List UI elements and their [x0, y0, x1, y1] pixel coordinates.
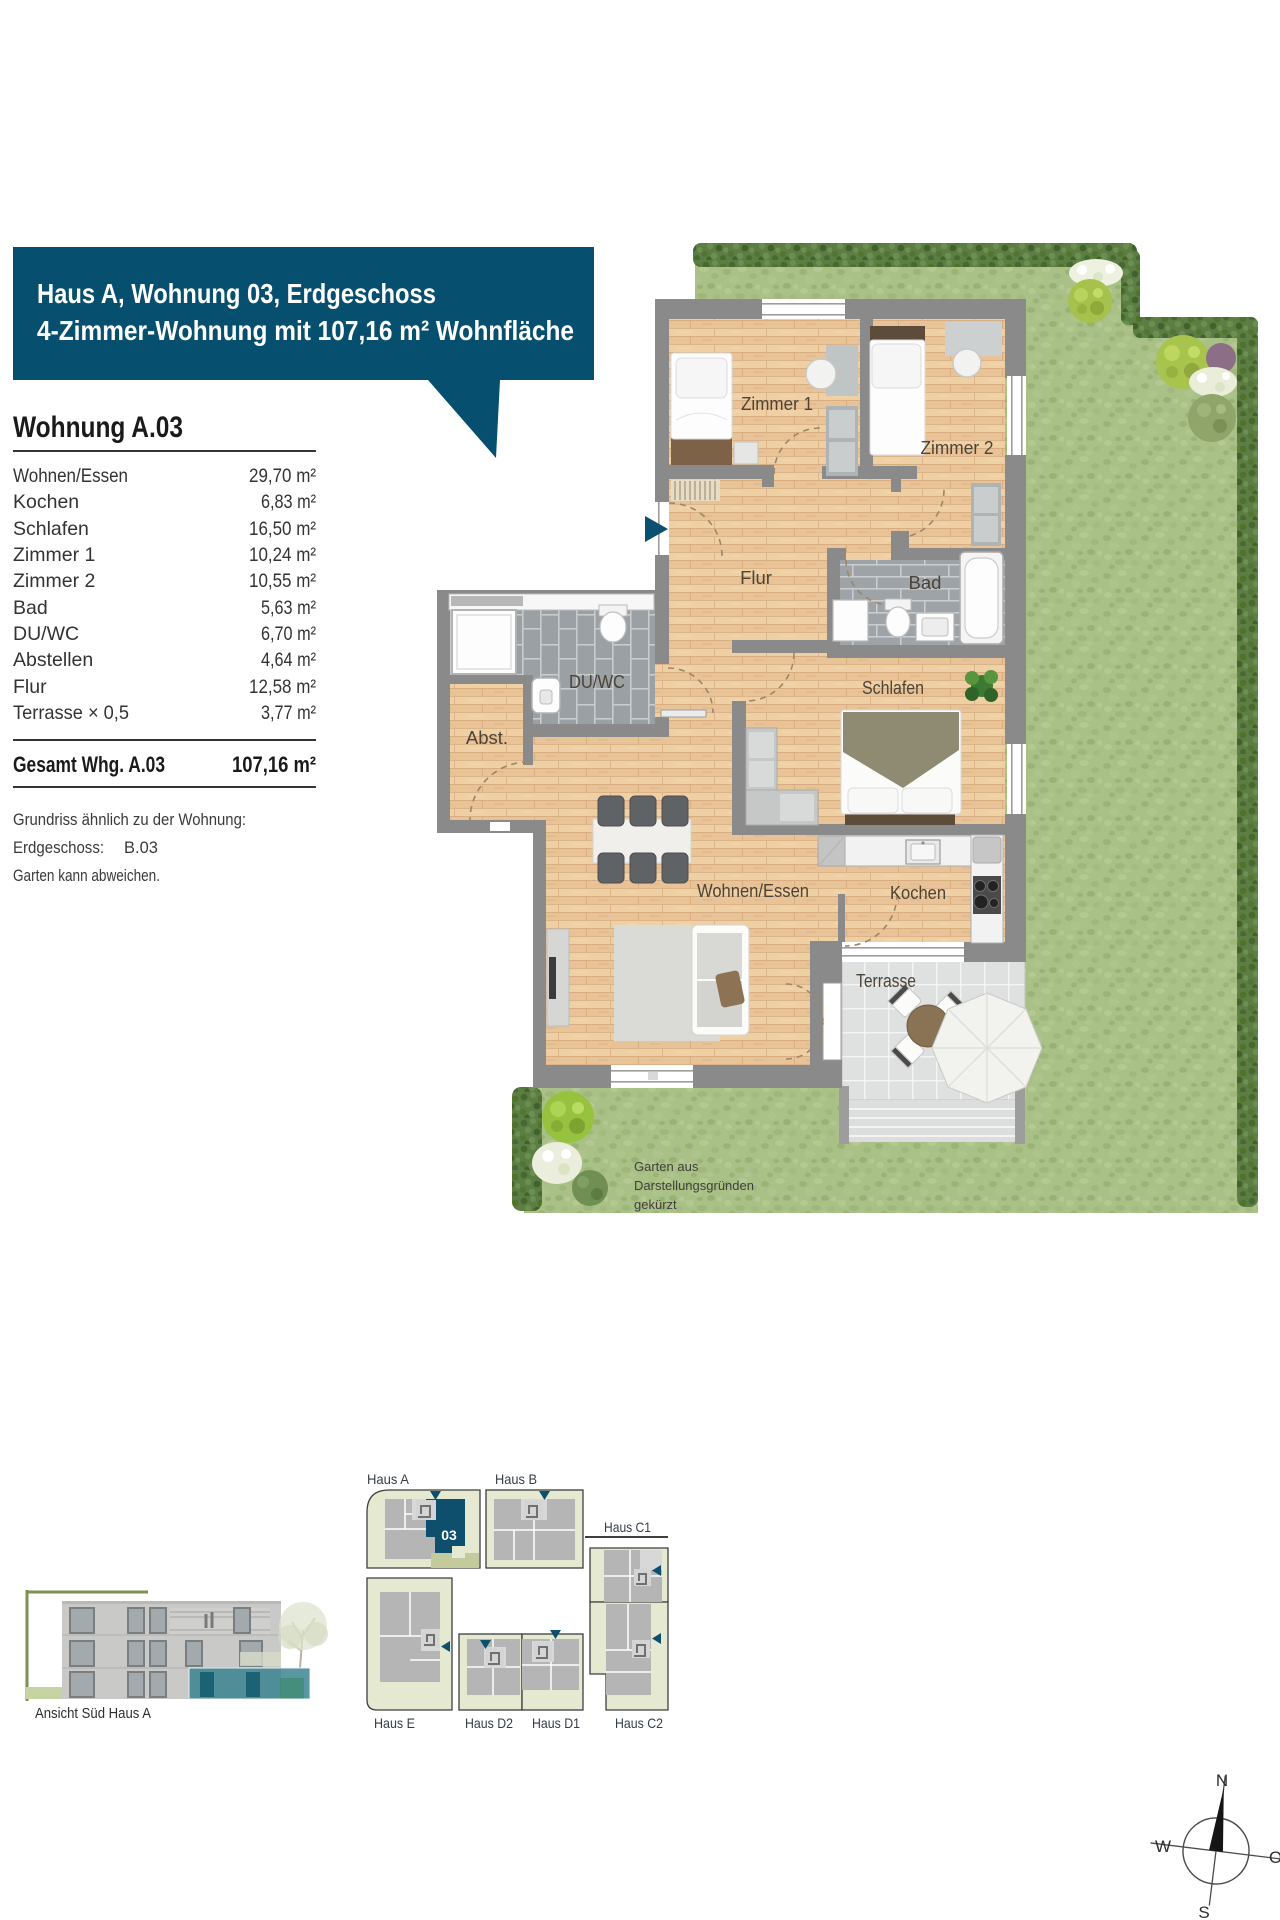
svg-text:Abstellen: Abstellen — [13, 649, 93, 671]
svg-text:Wohnen/Essen: Wohnen/Essen — [697, 880, 809, 901]
svg-text:DU/WC: DU/WC — [13, 623, 79, 645]
svg-text:Zimmer 2: Zimmer 2 — [921, 437, 994, 458]
svg-text:4,64 m²: 4,64 m² — [261, 649, 316, 671]
svg-text:Zimmer 1: Zimmer 1 — [13, 544, 95, 566]
svg-text:3,77 m²: 3,77 m² — [261, 702, 316, 724]
svg-text:5,63 m²: 5,63 m² — [261, 597, 316, 619]
svg-text:Abst.: Abst. — [466, 727, 508, 748]
svg-text:6,70 m²: 6,70 m² — [261, 623, 316, 645]
svg-text:4-Zimmer-Wohnung mit 107,16 m²: 4-Zimmer-Wohnung mit 107,16 m² Wohnfläch… — [37, 315, 574, 346]
svg-text:Haus B: Haus B — [495, 1471, 537, 1487]
svg-text:6,83 m²: 6,83 m² — [261, 491, 316, 513]
svg-text:Haus A, Wohnung 03, Erdgeschos: Haus A, Wohnung 03, Erdgeschoss — [37, 278, 436, 309]
svg-text:Ansicht Süd Haus A: Ansicht Süd Haus A — [35, 1706, 151, 1722]
svg-text:DU/WC: DU/WC — [569, 671, 625, 692]
svg-text:Kochen: Kochen — [890, 882, 946, 903]
svg-text:Bad: Bad — [13, 597, 48, 619]
svg-text:Grundriss ähnlich zu der Wohnu: Grundriss ähnlich zu der Wohnung: — [13, 811, 246, 829]
svg-text:Darstellungsgründen: Darstellungsgründen — [634, 1178, 754, 1193]
svg-text:107,16 m²: 107,16 m² — [232, 752, 316, 777]
svg-text:Erdgeschoss:: Erdgeschoss: — [13, 839, 104, 857]
svg-text:Haus C1: Haus C1 — [604, 1519, 651, 1535]
svg-text:N: N — [1216, 1771, 1228, 1790]
svg-text:gekürzt: gekürzt — [634, 1197, 677, 1212]
svg-text:Bad: Bad — [909, 572, 942, 593]
svg-text:Zimmer 1: Zimmer 1 — [741, 393, 813, 414]
svg-text:Garten aus: Garten aus — [634, 1159, 699, 1174]
svg-text:Haus A: Haus A — [367, 1471, 410, 1487]
svg-text:Kochen: Kochen — [13, 491, 79, 513]
svg-text:Wohnen/Essen: Wohnen/Essen — [13, 465, 128, 487]
svg-text:W: W — [1155, 1837, 1171, 1856]
svg-text:Wohnung A.03: Wohnung A.03 — [13, 411, 183, 444]
svg-text:Garten kann abweichen.: Garten kann abweichen. — [13, 867, 160, 885]
svg-text:Gesamt Whg. A.03: Gesamt Whg. A.03 — [13, 752, 165, 777]
svg-text:16,50 m²: 16,50 m² — [249, 518, 316, 540]
svg-text:03: 03 — [441, 1527, 457, 1543]
svg-text:Flur: Flur — [13, 676, 47, 698]
svg-text:10,55 m²: 10,55 m² — [249, 570, 316, 592]
svg-text:Schlafen: Schlafen — [13, 518, 89, 540]
svg-text:29,70 m²: 29,70 m² — [249, 465, 316, 487]
svg-text:Haus C2: Haus C2 — [615, 1715, 663, 1731]
svg-text:Schlafen: Schlafen — [862, 677, 924, 698]
svg-text:Haus D1: Haus D1 — [532, 1715, 580, 1731]
svg-text:Haus D2: Haus D2 — [465, 1715, 513, 1731]
svg-text:Zimmer 2: Zimmer 2 — [13, 570, 95, 592]
svg-text:S: S — [1198, 1903, 1209, 1920]
svg-text:12,58 m²: 12,58 m² — [249, 676, 316, 698]
svg-text:Terrasse × 0,5: Terrasse × 0,5 — [13, 702, 129, 724]
svg-text:Haus E: Haus E — [374, 1715, 415, 1731]
svg-text:O: O — [1269, 1848, 1280, 1867]
svg-text:Flur: Flur — [740, 567, 772, 588]
svg-text:Terrasse: Terrasse — [856, 970, 916, 991]
svg-text:10,24 m²: 10,24 m² — [249, 544, 316, 566]
svg-text:B.03: B.03 — [124, 839, 158, 857]
